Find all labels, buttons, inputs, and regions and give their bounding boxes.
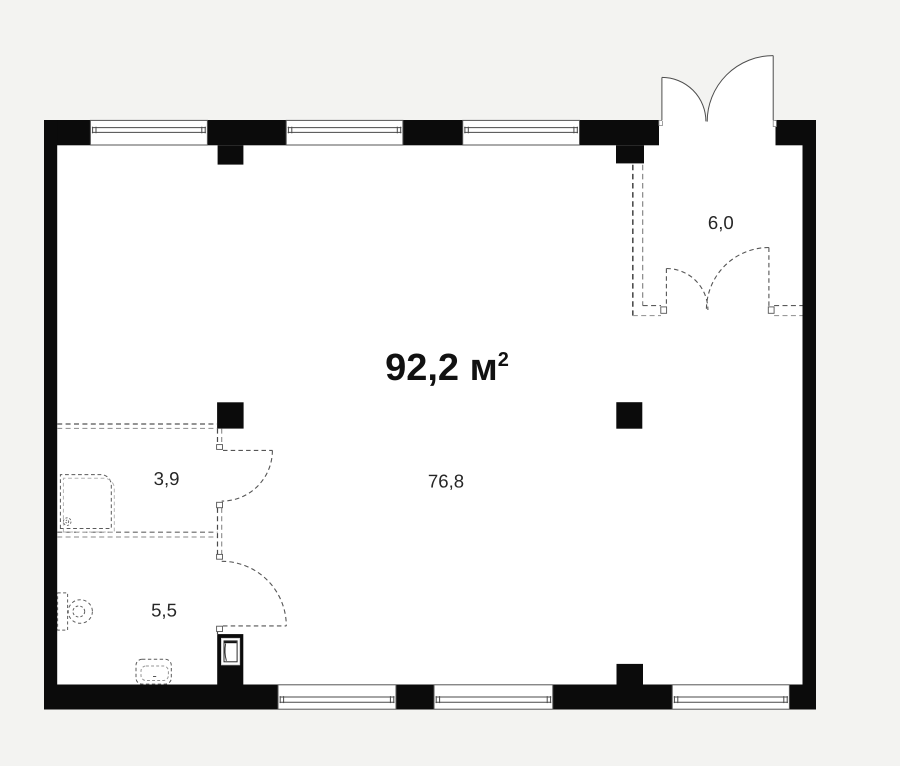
svg-text:5,5: 5,5 <box>151 600 177 621</box>
svg-text:3,9: 3,9 <box>154 468 180 489</box>
svg-text:76,8: 76,8 <box>428 470 464 491</box>
svg-text:6,0: 6,0 <box>708 212 734 233</box>
svg-text:92,2 м2: 92,2 м2 <box>385 347 509 389</box>
